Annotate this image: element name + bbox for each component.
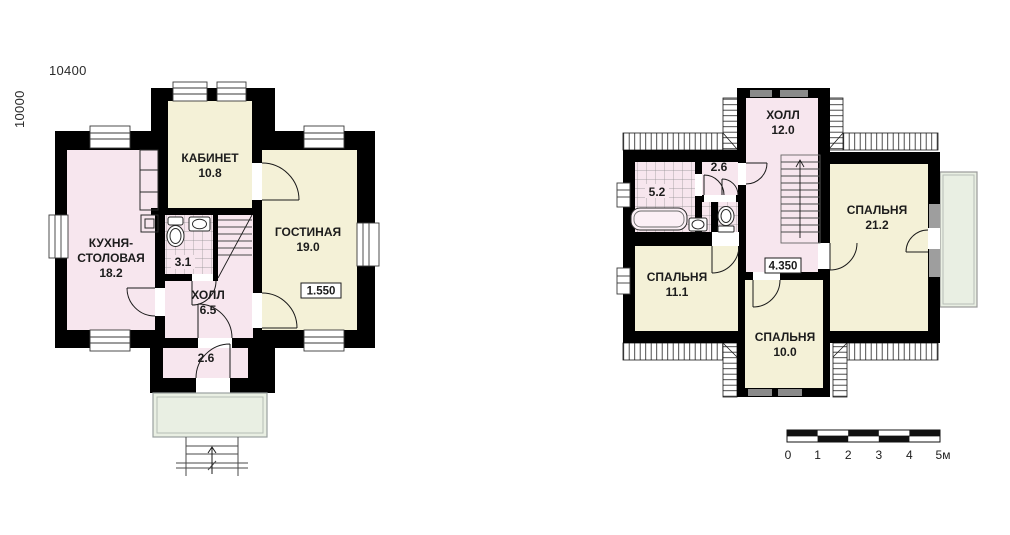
label-kitchen-area: 18.2 bbox=[99, 266, 123, 280]
scale-label-5m: 5м bbox=[936, 448, 951, 462]
label-level-mark-2: 4.350 bbox=[769, 261, 798, 273]
label-vestibule-area: 2.6 bbox=[198, 351, 215, 365]
label-living-name: ГОСТИНАЯ bbox=[275, 225, 341, 239]
label-bedroom-small-area: 10.0 bbox=[773, 345, 797, 359]
room-bedroom-large bbox=[830, 164, 928, 331]
sink-fixture bbox=[189, 217, 210, 231]
label-bathroom-area: 3.1 bbox=[175, 255, 192, 269]
bathtub-fixture bbox=[631, 208, 687, 230]
toilet-fixture bbox=[167, 217, 184, 247]
label-bedroom-small-name: СПАЛЬНЯ bbox=[755, 330, 815, 344]
label-hall-area: 6.5 bbox=[200, 303, 217, 317]
scale-bar-labels: 0 1 2 3 4 5м bbox=[785, 448, 950, 462]
scale-label-2: 2 bbox=[845, 448, 852, 462]
label-study-area: 10.8 bbox=[198, 166, 222, 180]
label-study-name: КАБИНЕТ bbox=[181, 151, 239, 165]
balcony bbox=[940, 172, 977, 307]
height-dimension-label: 10000 bbox=[12, 84, 27, 128]
label-bedroom-mid-name: СПАЛЬНЯ bbox=[647, 270, 707, 284]
scale-label-3: 3 bbox=[875, 448, 882, 462]
entrance-porch bbox=[153, 393, 267, 437]
label-hall-name: ХОЛЛ bbox=[191, 288, 225, 302]
label-bedroom-mid-area: 11.1 bbox=[666, 285, 689, 299]
scale-bar-segments bbox=[787, 430, 940, 442]
scale-label-1: 1 bbox=[814, 448, 821, 462]
entrance-steps bbox=[176, 437, 248, 476]
label-bedroom-large-name: СПАЛЬНЯ bbox=[847, 203, 907, 217]
label-bathroom2-area: 5.2 bbox=[649, 185, 666, 199]
label-living-area: 19.0 bbox=[296, 240, 320, 254]
label-kitchen-name-2: СТОЛОВАЯ bbox=[77, 251, 145, 265]
scale-label-4: 4 bbox=[906, 448, 913, 462]
first-floor-plan: КАБИНЕТ 10.8 ГОСТИНАЯ 19.0 КУХНЯ- СТОЛОВ… bbox=[40, 60, 390, 490]
toilet-fixture2 bbox=[718, 207, 734, 233]
label-bedroom-large-area: 21.2 bbox=[865, 218, 889, 232]
label-level-mark-1: 1.550 bbox=[307, 286, 336, 298]
sink-fixture2 bbox=[689, 218, 707, 231]
label-hall2-name: ХОЛЛ bbox=[766, 108, 800, 122]
label-closet-area: 2.6 bbox=[711, 160, 728, 174]
label-hall2-area: 12.0 bbox=[771, 123, 795, 137]
scale-bar: 0 1 2 3 4 5м bbox=[785, 428, 965, 470]
floor-plan-sheet: 10400 10000 bbox=[0, 0, 1010, 535]
second-floor-plan: ХОЛЛ 12.0 СПАЛЬНЯ 21.2 СПАЛЬНЯ 11.1 СПАЛ… bbox=[610, 80, 995, 420]
label-kitchen-name-1: КУХНЯ- bbox=[89, 236, 133, 250]
scale-label-0: 0 bbox=[785, 448, 792, 462]
